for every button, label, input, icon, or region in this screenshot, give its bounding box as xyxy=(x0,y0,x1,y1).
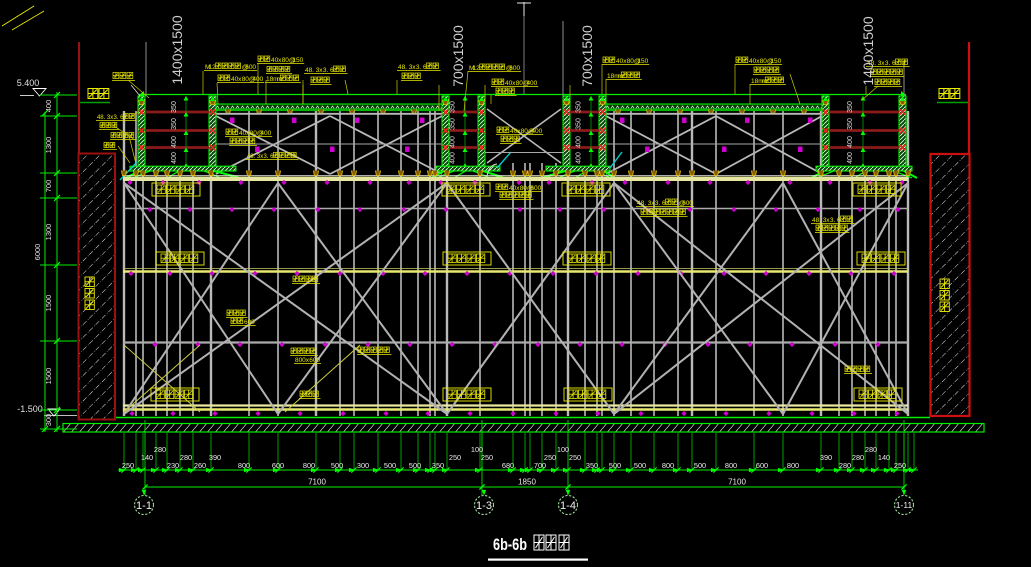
svg-text:.: . xyxy=(326,67,328,74)
svg-text:700x1500: 700x1500 xyxy=(579,25,595,87)
svg-text:6000: 6000 xyxy=(33,244,42,261)
svg-text:1850: 1850 xyxy=(518,478,536,487)
svg-text:1-3: 1-3 xyxy=(476,500,492,512)
svg-text:1500: 1500 xyxy=(44,368,53,385)
svg-text:0: 0 xyxy=(517,65,521,72)
svg-text:250: 250 xyxy=(122,461,134,470)
svg-text:400: 400 xyxy=(450,152,457,164)
svg-text:250: 250 xyxy=(894,461,906,470)
svg-text:700: 700 xyxy=(534,461,546,470)
svg-text:1500: 1500 xyxy=(44,295,53,312)
svg-text:800: 800 xyxy=(725,461,737,470)
svg-text:350: 350 xyxy=(847,118,854,130)
svg-text:0: 0 xyxy=(778,58,782,65)
svg-text:300: 300 xyxy=(44,414,53,427)
svg-text:.: . xyxy=(819,217,821,224)
svg-text:.: . xyxy=(834,217,836,224)
svg-text:350: 350 xyxy=(847,101,854,113)
svg-text:350: 350 xyxy=(432,461,444,470)
svg-text:.: . xyxy=(405,64,407,71)
svg-text:140: 140 xyxy=(878,453,890,462)
svg-text:250: 250 xyxy=(544,453,556,462)
svg-text:1400x1500: 1400x1500 xyxy=(169,15,185,85)
svg-text:400: 400 xyxy=(576,136,583,148)
svg-text:700x1500: 700x1500 xyxy=(450,25,466,87)
svg-text:350: 350 xyxy=(586,461,598,470)
svg-text:0: 0 xyxy=(689,200,693,207)
svg-text:250: 250 xyxy=(569,453,581,462)
svg-text:1-11: 1-11 xyxy=(896,500,913,510)
svg-text:280: 280 xyxy=(839,461,851,470)
svg-text:0: 0 xyxy=(268,130,272,137)
svg-text:280: 280 xyxy=(154,445,166,454)
svg-text:260: 260 xyxy=(194,461,206,470)
svg-text:680: 680 xyxy=(502,461,514,470)
svg-text:250: 250 xyxy=(449,453,461,462)
svg-text:500: 500 xyxy=(331,461,343,470)
svg-text:350: 350 xyxy=(171,118,178,130)
svg-text:300: 300 xyxy=(357,461,369,470)
svg-text:0: 0 xyxy=(645,58,649,65)
svg-text:350: 350 xyxy=(450,101,457,113)
svg-text:140: 140 xyxy=(141,453,153,462)
svg-text:0: 0 xyxy=(252,64,256,71)
svg-text:0: 0 xyxy=(316,357,320,364)
svg-text:280: 280 xyxy=(180,453,192,462)
svg-text:350: 350 xyxy=(576,101,583,113)
svg-text:0: 0 xyxy=(300,57,304,64)
svg-text:1300: 1300 xyxy=(44,137,53,154)
svg-text:5.400: 5.400 xyxy=(17,78,40,88)
svg-text:350: 350 xyxy=(576,118,583,130)
svg-text:1300: 1300 xyxy=(44,224,53,241)
svg-text:500: 500 xyxy=(634,461,646,470)
svg-text:390: 390 xyxy=(209,453,221,462)
svg-text:0: 0 xyxy=(251,319,255,326)
svg-text:100: 100 xyxy=(557,445,569,454)
svg-text:0: 0 xyxy=(260,76,264,83)
svg-text:500: 500 xyxy=(609,461,621,470)
svg-text:1-4: 1-4 xyxy=(560,500,576,512)
svg-text:0: 0 xyxy=(534,80,538,87)
svg-text:500: 500 xyxy=(409,461,421,470)
svg-text:1-1: 1-1 xyxy=(136,500,152,512)
svg-text:230: 230 xyxy=(167,461,179,470)
svg-text:800: 800 xyxy=(303,461,315,470)
svg-text:350: 350 xyxy=(171,101,178,113)
svg-text:1400x1500: 1400x1500 xyxy=(860,16,876,86)
svg-text:.: . xyxy=(659,200,661,207)
svg-text:400: 400 xyxy=(450,136,457,148)
svg-text:600: 600 xyxy=(756,461,768,470)
svg-text:250: 250 xyxy=(481,453,493,462)
svg-text:400: 400 xyxy=(847,136,854,148)
svg-text:0: 0 xyxy=(538,185,542,192)
svg-text:800: 800 xyxy=(238,461,250,470)
svg-text:.: . xyxy=(419,64,421,71)
svg-text:390: 390 xyxy=(820,453,832,462)
svg-text:700: 700 xyxy=(44,180,53,193)
svg-text:280: 280 xyxy=(852,453,864,462)
svg-text:6b-6b: 6b-6b xyxy=(493,535,527,554)
svg-text:-1.500: -1.500 xyxy=(17,404,43,414)
svg-text:.: . xyxy=(312,67,314,74)
svg-text:800: 800 xyxy=(787,461,799,470)
svg-text:400: 400 xyxy=(171,136,178,148)
svg-text:400: 400 xyxy=(847,152,854,164)
svg-text:.: . xyxy=(644,200,646,207)
svg-text:600: 600 xyxy=(272,461,284,470)
svg-text:500: 500 xyxy=(384,461,396,470)
svg-text:350: 350 xyxy=(450,118,457,130)
svg-text:7100: 7100 xyxy=(728,478,746,487)
svg-text:.: . xyxy=(889,60,891,67)
svg-text:400: 400 xyxy=(171,152,178,164)
svg-text:280: 280 xyxy=(865,445,877,454)
svg-text:800: 800 xyxy=(662,461,674,470)
svg-text:500: 500 xyxy=(694,461,706,470)
svg-text:400: 400 xyxy=(576,152,583,164)
svg-text:7100: 7100 xyxy=(308,478,326,487)
svg-text:400: 400 xyxy=(44,100,53,113)
svg-text:0: 0 xyxy=(539,128,543,135)
